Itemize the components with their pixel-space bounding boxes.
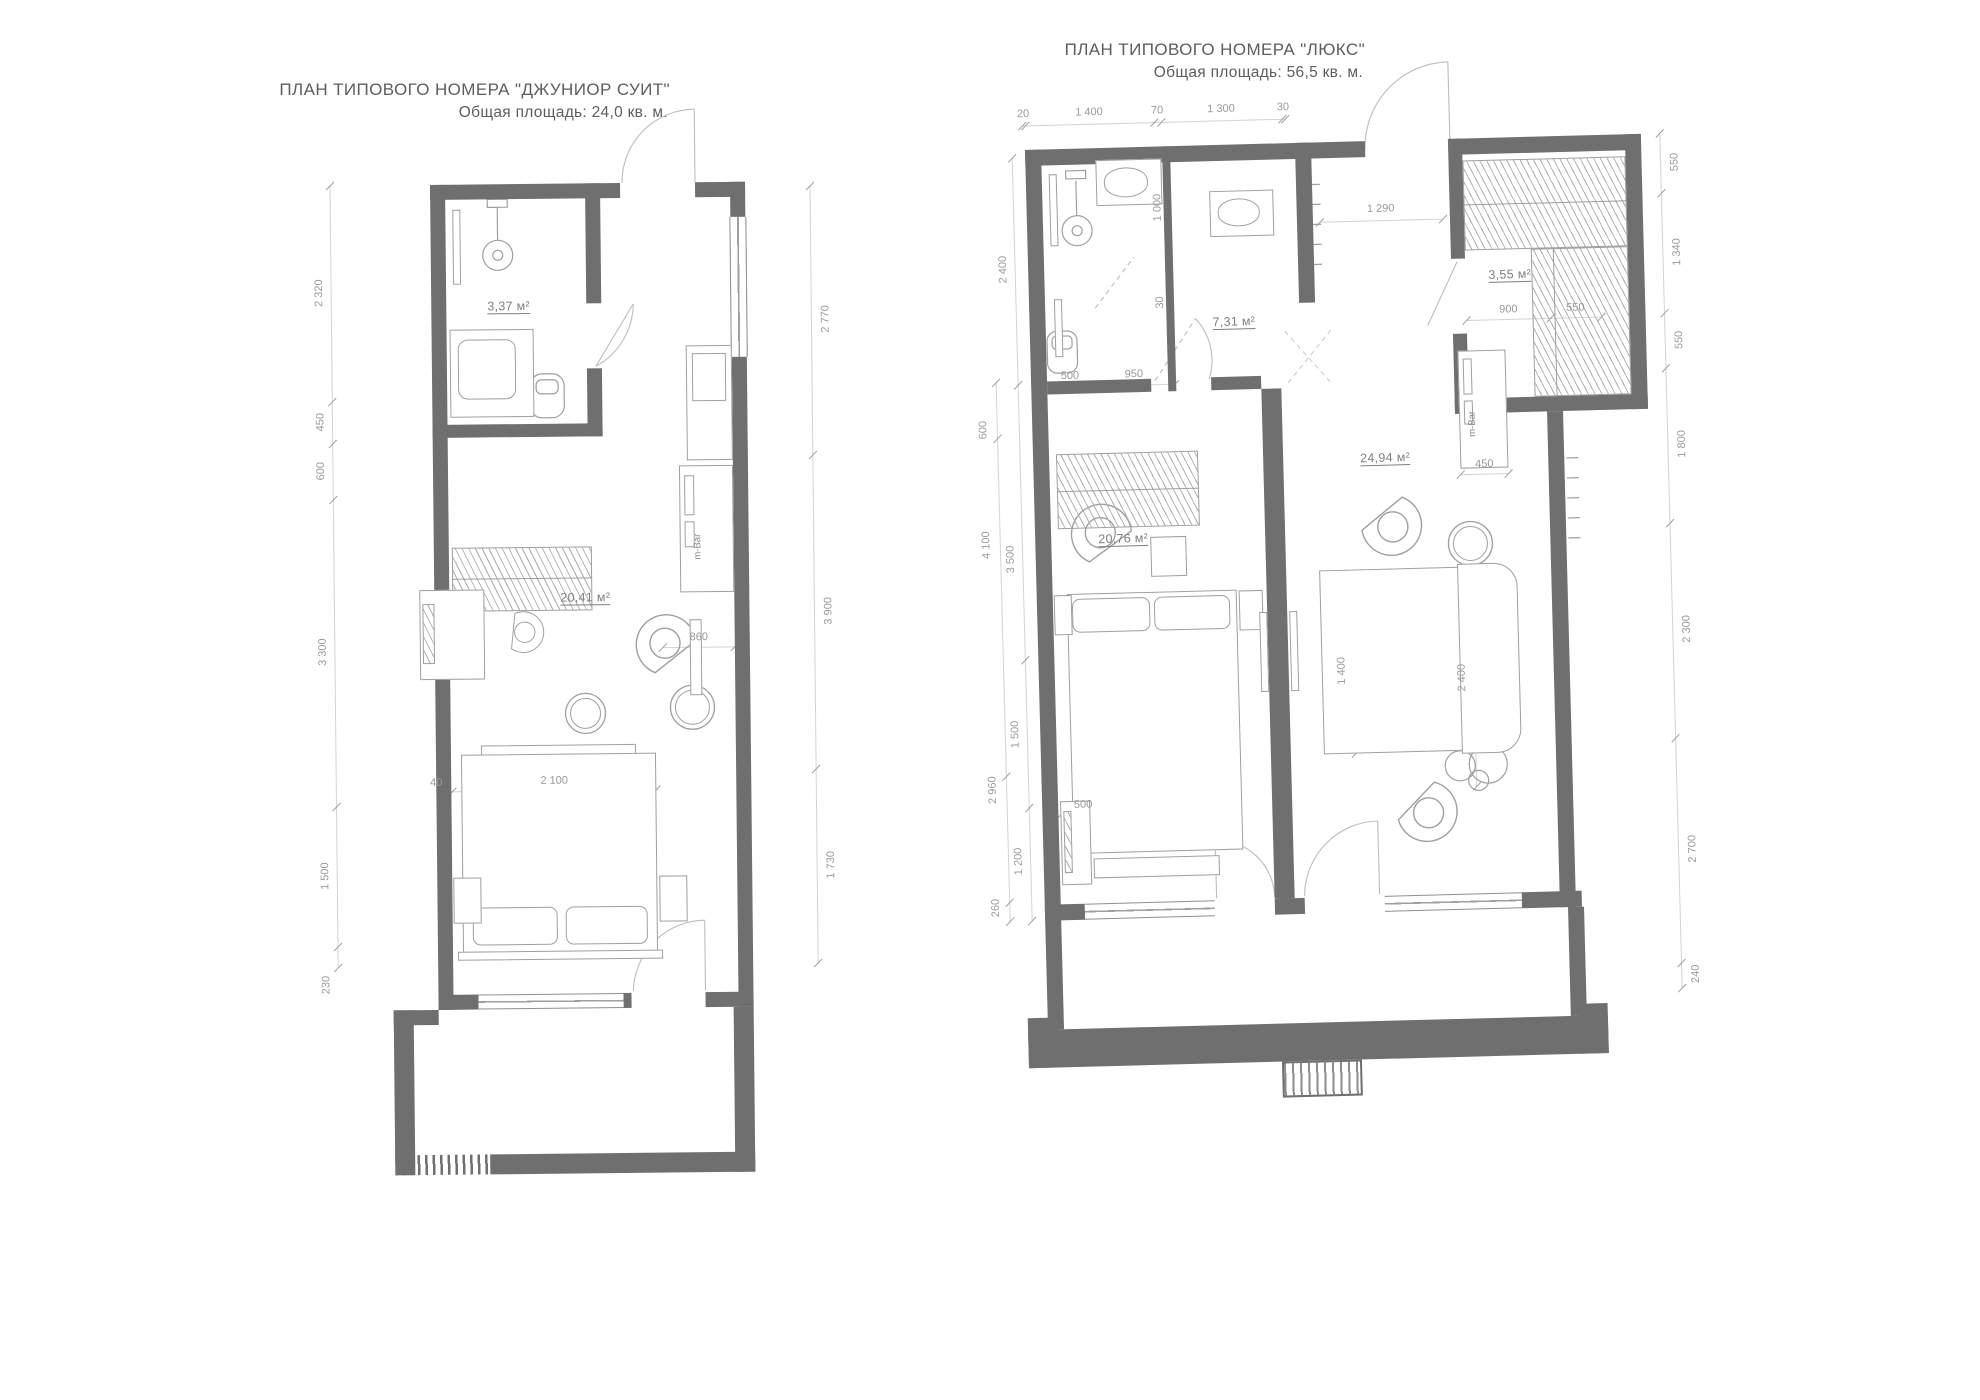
terrace-wall [734, 1007, 756, 1172]
sink [458, 339, 517, 400]
pillow [1154, 595, 1231, 631]
stair-hatch [1282, 1059, 1363, 1097]
dim-label: 2 960 [986, 766, 999, 814]
dim-label: 1 000 [1151, 183, 1164, 231]
wall [438, 995, 478, 1010]
dim-label: 1 800 [1675, 420, 1688, 468]
window [729, 217, 747, 357]
bedroom-area-label: 20,76 м² [1098, 531, 1148, 546]
terrace-wall [490, 1152, 755, 1175]
lamp-table [1150, 536, 1187, 577]
nightstand [1054, 595, 1073, 635]
dim-label: 2 770 [819, 295, 832, 343]
window [1085, 900, 1215, 919]
junior-suite-plan: ПЛАН ТИПОВОГО НОМЕРА "ДЖУНИОР СУИТ" Обща… [260, 80, 920, 1220]
floor-plan-sheet: ПЛАН ТИПОВОГО НОМЕРА "ДЖУНИОР СУИТ" Обща… [0, 0, 1980, 1400]
dim-label: 40 [424, 777, 448, 789]
pillow [473, 907, 558, 946]
dim-label: 2 700 [1686, 825, 1699, 873]
dim-label: 2 300 [1680, 605, 1693, 653]
nightstand [659, 875, 687, 921]
dim-label: 500 [1053, 369, 1087, 382]
dim-label: 260 [989, 884, 1002, 932]
terrace-wall [394, 1010, 416, 1175]
bathroom-area-label: 7,31 м² [1212, 314, 1255, 329]
minibar-shelf [1463, 358, 1473, 394]
desk-tv [422, 604, 435, 664]
lux-plan: ПЛАН ТИПОВОГО НОМЕРА "ЛЮКС" Общая площад… [960, 40, 1750, 1200]
lux-drawing: m-Bar 7,31 м² 3,55 м² 20,76 м² 24,94 м² … [957, 21, 1777, 1201]
room-area-label: 20,41 м² [560, 590, 610, 605]
dim-label: 500 [1066, 798, 1100, 811]
dim-label: 550 [1673, 316, 1686, 364]
minibar-shelf [684, 475, 694, 515]
living-area-label: 24,94 м² [1360, 450, 1410, 465]
dim-label: 3 500 [1004, 535, 1017, 583]
dim-label: 30 [1153, 278, 1166, 326]
dim-label: 900 [1491, 303, 1525, 316]
dim-label: 1 500 [1009, 710, 1022, 758]
dim-label: 950 [1117, 368, 1151, 381]
dim-label: 2 100 [530, 774, 578, 787]
dim-label: 1 500 [319, 852, 332, 900]
dim-label: 3 300 [317, 628, 330, 676]
dim-label: 30 [1268, 101, 1298, 114]
wardrobe-area-label: 3,55 м² [1488, 267, 1531, 282]
terrace-wall [394, 1010, 439, 1025]
bathroom-mirror [452, 210, 461, 285]
fridge [692, 353, 727, 401]
footing-cap [1028, 1017, 1059, 1068]
bed-bench [1094, 855, 1220, 878]
dim-label: 600 [977, 406, 990, 454]
dim-label: 550 [1558, 301, 1592, 314]
dim-label: 1 200 [1012, 837, 1025, 885]
wall [705, 992, 753, 1008]
dim-label: 860 [679, 631, 719, 643]
window [478, 993, 623, 1010]
towel-radiator [1054, 299, 1064, 357]
junior-drawing: m-Bar 3,37 м² 20,41 м² 2 320 450 600 3 3… [259, 75, 931, 1222]
dim-label: 1 290 [1351, 202, 1411, 216]
wall [433, 423, 603, 438]
nightstand [453, 878, 481, 924]
pillow [566, 906, 648, 945]
dim-label: 240 [1689, 950, 1702, 998]
dim-label: 1 400 [1335, 647, 1348, 695]
dim-label: 70 [1142, 104, 1172, 117]
dim-label: 4 100 [980, 521, 993, 569]
wall [585, 183, 601, 303]
terrace-railing [395, 1154, 490, 1175]
wardrobe [1531, 246, 1632, 396]
minibar-label: m-Bar [692, 527, 703, 567]
wall [1522, 891, 1582, 909]
desk-tv [1063, 811, 1073, 873]
bathroom-area-label: 3,37 м² [487, 299, 530, 313]
dim-label: 2 320 [313, 269, 326, 317]
dim-label: 3 900 [822, 587, 835, 635]
footing-cap [1578, 1003, 1609, 1054]
dim-label: 450 [314, 398, 327, 446]
dim-label: 2 400 [1455, 654, 1468, 702]
wall [1211, 376, 1261, 390]
dim-label: 1 730 [825, 841, 838, 889]
dim-label: 1 400 [1059, 106, 1119, 120]
wall [623, 993, 631, 1008]
pillow [1072, 597, 1151, 633]
dim-label: 20 [1008, 108, 1038, 121]
wall [1045, 904, 1085, 921]
dim-label: 1 340 [1670, 228, 1683, 276]
balcony-wall [1568, 907, 1587, 1016]
dim-label: 600 [315, 447, 328, 495]
dim-label: 230 [320, 961, 333, 1009]
dim-label: 450 [1467, 458, 1501, 471]
dim-label: 550 [1668, 138, 1681, 186]
dim-label: 2 400 [996, 245, 1009, 293]
wall [1275, 898, 1305, 915]
minibar-label: m-Bar [1466, 404, 1478, 444]
dim-label: 1 300 [1191, 102, 1251, 116]
